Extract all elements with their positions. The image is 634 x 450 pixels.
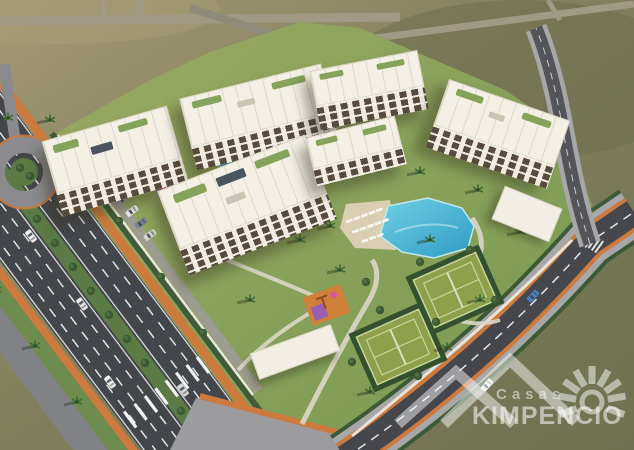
- tree: [16, 164, 24, 172]
- roundabout-island: [10, 158, 38, 186]
- aerial-render-residential-complex: Casas KIMPENCIO: [0, 0, 634, 450]
- tree: [26, 172, 34, 180]
